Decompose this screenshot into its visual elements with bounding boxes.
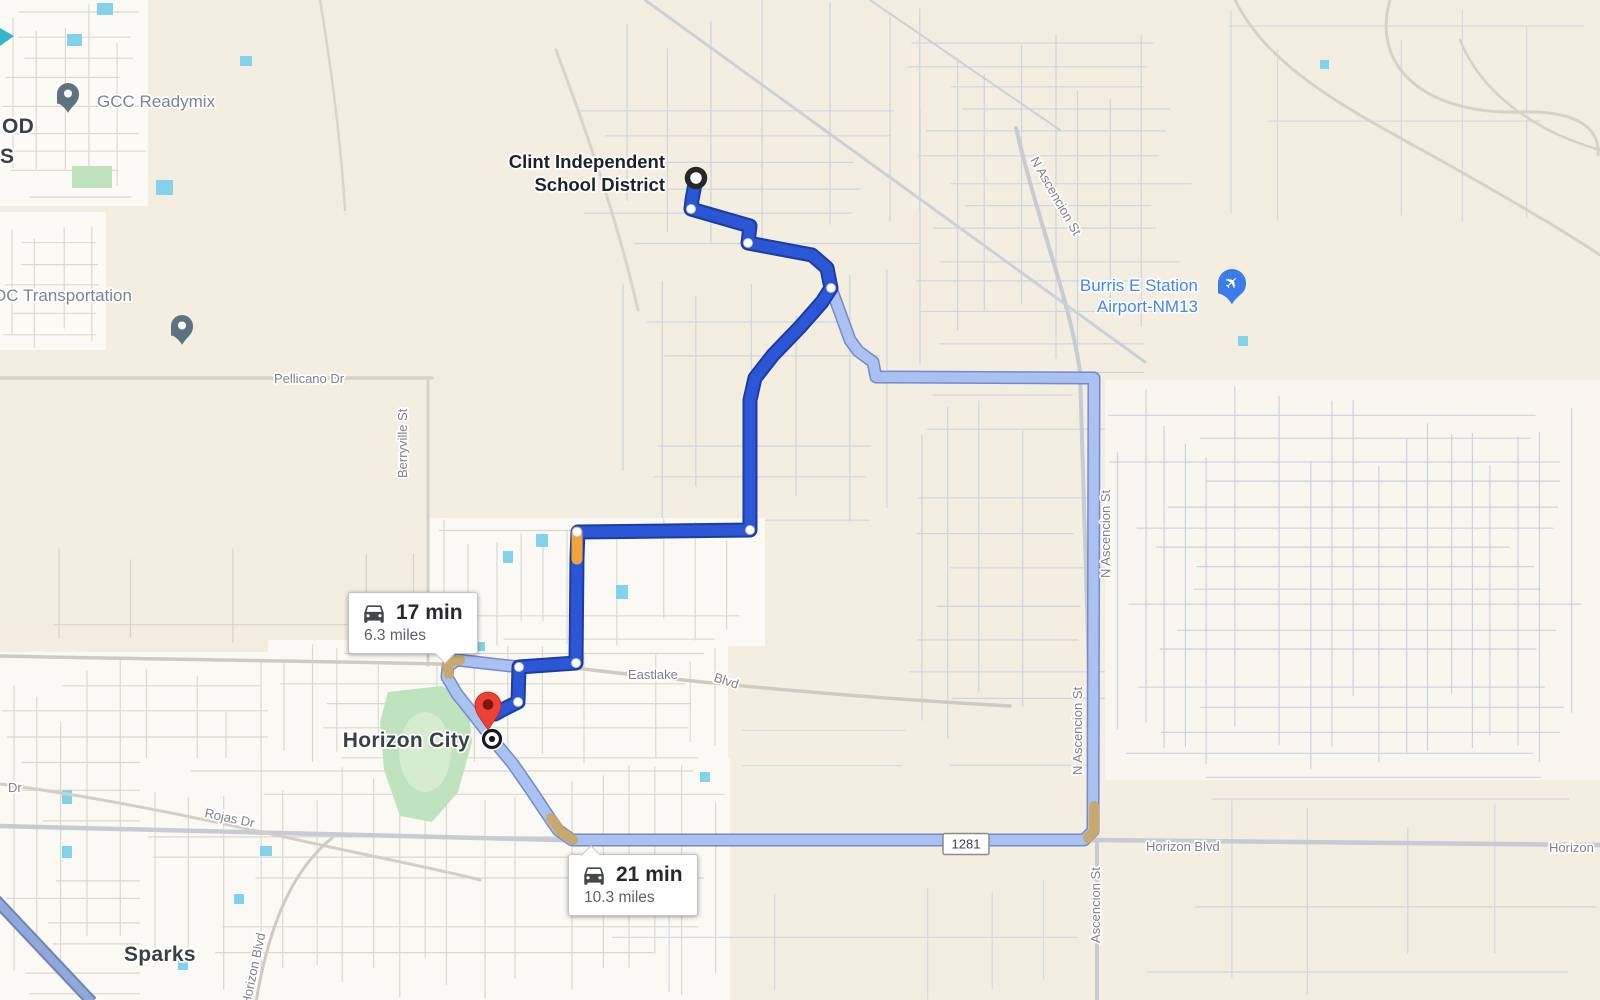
water-feature bbox=[503, 551, 513, 563]
water-feature bbox=[1238, 336, 1248, 346]
water-feature bbox=[536, 534, 548, 547]
map-viewport[interactable]: 1281ODSGCC ReadymixDC TransportationPell… bbox=[0, 0, 1600, 1000]
label-clint-independent: Clint Independent bbox=[509, 151, 665, 172]
label-n-ascencion-st: N Ascencion St bbox=[1070, 686, 1085, 775]
label-berryville-st: Berryville St bbox=[395, 408, 410, 478]
label-school-district: School District bbox=[534, 174, 665, 195]
label-eastlake: Eastlake bbox=[628, 667, 678, 682]
label-od: OD bbox=[2, 115, 34, 138]
label-n-ascencion-st: N Ascencion St bbox=[1098, 489, 1113, 578]
pin-dot bbox=[64, 90, 72, 98]
label-burris-e-station[interactable]: Burris E Station bbox=[1080, 276, 1198, 295]
alternate-route-duration: 21 min bbox=[616, 863, 683, 887]
route-info-bubble-alternate[interactable]: 21 min 10.3 miles bbox=[568, 854, 698, 916]
route-waypoint-dot bbox=[687, 205, 696, 214]
map-canvas[interactable]: 1281ODSGCC ReadymixDC TransportationPell… bbox=[0, 0, 1600, 1000]
water-feature bbox=[616, 585, 628, 599]
route-waypoint-dot bbox=[573, 528, 582, 537]
car-icon bbox=[581, 862, 607, 888]
label-sparks: Sparks bbox=[124, 943, 196, 966]
route-waypoint-dot bbox=[827, 284, 836, 293]
label-gcc-readymix[interactable]: GCC Readymix bbox=[97, 92, 216, 111]
label-horizon: Horizon bbox=[1549, 840, 1594, 855]
route-waypoint-dot bbox=[515, 663, 524, 672]
horizon-city-marker[interactable] bbox=[484, 731, 501, 748]
park-area bbox=[72, 166, 112, 188]
route-waypoint-dot bbox=[572, 659, 581, 668]
label-horizon-blvd: Horizon Blvd bbox=[1146, 839, 1220, 854]
route-waypoint-dot bbox=[744, 239, 753, 248]
label-ascencion-st: Ascencion St bbox=[1088, 867, 1103, 943]
label-dc-transportation[interactable]: DC Transportation bbox=[0, 286, 132, 305]
label-pellicano-dr: Pellicano Dr bbox=[274, 371, 345, 386]
alternate-route-distance: 10.3 miles bbox=[584, 889, 683, 907]
water-feature bbox=[260, 846, 272, 856]
route-info-bubble-primary[interactable]: 17 min 6.3 miles bbox=[348, 592, 478, 654]
label-dr: Dr bbox=[8, 780, 22, 795]
water-feature bbox=[62, 846, 72, 858]
primary-route-distance: 6.3 miles bbox=[364, 627, 463, 645]
car-icon bbox=[361, 600, 387, 626]
water-feature bbox=[1320, 60, 1329, 69]
route-waypoint-dot bbox=[514, 698, 523, 707]
water-feature bbox=[156, 180, 173, 195]
water-feature bbox=[234, 894, 244, 904]
primary-route-duration: 17 min bbox=[396, 601, 463, 625]
route-waypoint-dot bbox=[746, 526, 755, 535]
water-feature bbox=[240, 56, 252, 66]
water-feature bbox=[67, 34, 82, 46]
water-feature bbox=[97, 3, 113, 15]
start-marker[interactable] bbox=[688, 170, 705, 187]
urban-area bbox=[0, 212, 106, 350]
water-feature bbox=[700, 772, 710, 782]
label-airport-nm13[interactable]: Airport-NM13 bbox=[1097, 297, 1198, 316]
label-horizon-city: Horizon City bbox=[343, 729, 470, 752]
pin-dot bbox=[178, 322, 186, 330]
park-area bbox=[399, 712, 451, 792]
label-s: S bbox=[0, 145, 14, 168]
route-shield-label: 1281 bbox=[952, 837, 981, 852]
